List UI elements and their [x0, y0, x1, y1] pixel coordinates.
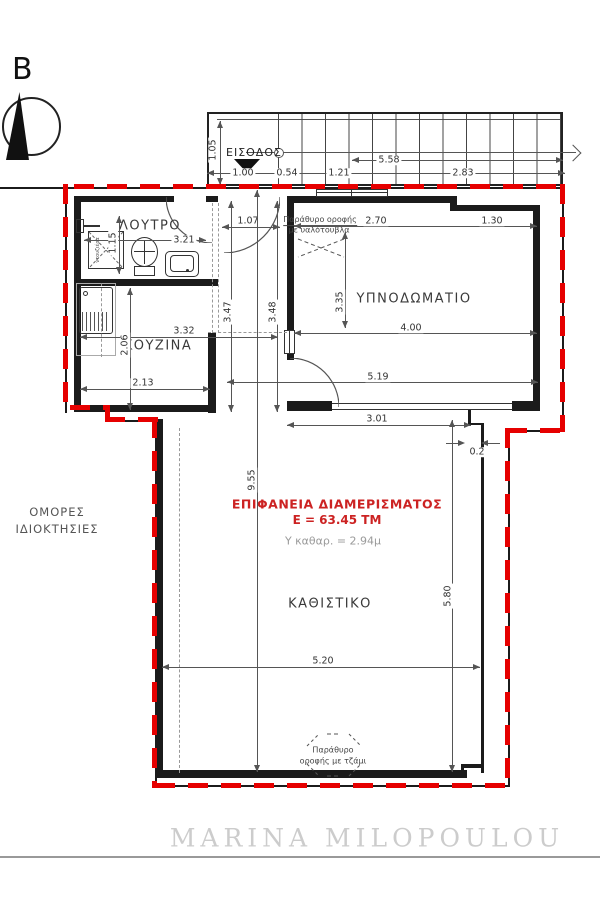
toilet-cross-v: [144, 240, 145, 264]
dim-line-kitchen-width: [80, 337, 278, 338]
neighbors-label-1: ΟΜΟΡΕΣ: [29, 505, 85, 519]
window-skylight-top: [316, 189, 388, 197]
beam-line-3: [208, 332, 287, 333]
wall-living-bottom-notch-v: [461, 764, 464, 778]
dim-jog-stub-r: [488, 443, 500, 444]
wall-living-bottom-notch-h: [461, 764, 484, 768]
area-note-line1: ΕΠΙΦΑΝΕΙΑ ΔΙΑΜΕΡΙΣΜΑΤΟΣ: [232, 497, 442, 512]
footer-line: [0, 856, 600, 858]
dim-line-bath-depth: [119, 216, 120, 274]
sill-bedroom-right: [512, 401, 540, 411]
entrance-label: ΕΙΣΟΔΟΣ: [226, 146, 282, 159]
dim-line-kitchen-clear: [80, 389, 210, 390]
stair-arrow-icon: [565, 145, 582, 162]
dim-line-entry-depth: [220, 121, 221, 185]
radiator-icon: [76, 219, 84, 233]
room-label-kitchen: ΚΟΥΖΙΝΑ: [124, 339, 193, 354]
boundary-red-step: [507, 428, 565, 433]
dim-kitchen-width: 3.32: [171, 326, 196, 336]
dim-bed-width: 4.00: [398, 323, 423, 333]
boundary-red-left-lower: [152, 418, 157, 788]
stair-direction-line: [246, 152, 576, 153]
dim-total-depth: 9.55: [247, 467, 257, 492]
sink-drain: [186, 269, 189, 272]
wall-bedroom-top: [287, 196, 457, 203]
sink-basin: [170, 255, 194, 272]
dim-kitchen-clear: 2.13: [130, 378, 155, 388]
wall-bath-top: [74, 196, 174, 202]
dim-entry-1: 1.00: [230, 168, 255, 178]
boundary-red-right-upper: [560, 184, 565, 432]
dim-jog-arrow-r: [481, 440, 488, 446]
room-label-bathroom: ΛΟΥΤΡΟ: [119, 219, 181, 234]
dim-line-entry-row: [207, 173, 565, 174]
kitchen-drainboard: [82, 312, 110, 331]
kitchen-faucet-icon: [83, 291, 88, 296]
dim-bed-top-right: 1.30: [479, 216, 504, 226]
kitchen-centerline: [101, 283, 102, 357]
dim-bath-depth: 1.15: [108, 230, 118, 255]
room-label-bedroom: ΥΠΝΟΔΩΜΑΤΙΟ: [356, 292, 471, 307]
radiator-bar: [84, 225, 100, 227]
dim-bath-width: 3.21: [171, 235, 196, 245]
boundary-red-kitchen-b: [105, 417, 159, 422]
dim-living-height: 5.80: [443, 583, 453, 608]
boundary-red-bottom: [155, 783, 510, 788]
dim-hall-left: 3.47: [223, 299, 233, 324]
dim-entry-3: 1.21: [326, 168, 351, 178]
dim-bed-total: 5.19: [365, 372, 390, 382]
dim-line-bed-height: [345, 232, 346, 328]
beam-line-1: [212, 203, 213, 333]
dim-kitchen-depth: 2.06: [120, 332, 130, 357]
floor-plan: B 1.05 ΕΙΣΟΔΟΣ 1.00 0.54 1.21 2.83 5.58: [0, 0, 600, 900]
toilet-cross-h: [134, 251, 155, 252]
area-note-line2: Ε = 63.45 ΤΜ: [293, 513, 382, 527]
skylight-bottom-symbol: [303, 732, 365, 778]
beam-line-2: [218, 203, 219, 333]
dim-bed-height: 3.35: [335, 289, 345, 314]
wall-bedroom-top-right: [450, 205, 540, 211]
wall-living-right: [481, 423, 484, 773]
toilet-base: [134, 266, 155, 276]
boundary-red-left-upper: [63, 184, 68, 410]
dim-entry-depth: 1.05: [208, 137, 218, 162]
boundary-red-kitchen-a: [70, 405, 110, 410]
dim-entry-4: 2.83: [450, 168, 475, 178]
dim-living-opening: 3.01: [364, 414, 389, 424]
dim-line-living-width: [162, 667, 480, 668]
dim-stairs-run: 5.58: [376, 155, 401, 165]
north-label: B: [12, 52, 33, 87]
shower-label: ντουζιέρα: [95, 237, 101, 262]
dim-living-width: 5.20: [310, 656, 335, 666]
clear-height-note: Υ καθαρ. = 2.94μ: [285, 535, 381, 548]
wall-kitchen-right: [208, 333, 216, 413]
dim-entry-2: 0.54: [274, 168, 299, 178]
living-dashed-line: [179, 428, 180, 773]
dim-line-living-opening: [287, 425, 471, 426]
boundary-red-top: [74, 184, 565, 189]
dim-jog: 0.2: [467, 447, 486, 457]
room-label-living: ΚΑΘΙΣΤΙΚΟ: [288, 597, 372, 612]
boundary-red-right-lower: [505, 428, 510, 788]
skylight-top-symbol: [296, 237, 346, 259]
neighbors-label-2: ΙΔΙΟΚΤΗΣΙΕΣ: [15, 522, 98, 536]
dim-hall-right: 3.48: [268, 299, 278, 324]
dim-jog-arrow-l: [458, 440, 465, 446]
dim-bed-top-left: 2.70: [363, 216, 388, 226]
watermark: MARINA MILOPOULOU: [170, 824, 564, 853]
